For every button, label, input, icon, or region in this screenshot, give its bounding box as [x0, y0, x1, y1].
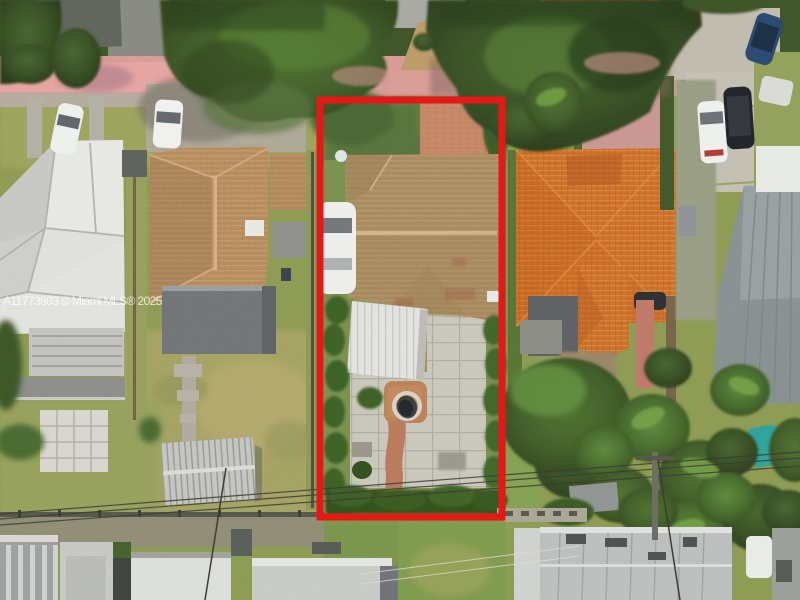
svg-text:A11773803 © Miami MLS® 2025: A11773803 © Miami MLS® 2025	[3, 294, 163, 308]
